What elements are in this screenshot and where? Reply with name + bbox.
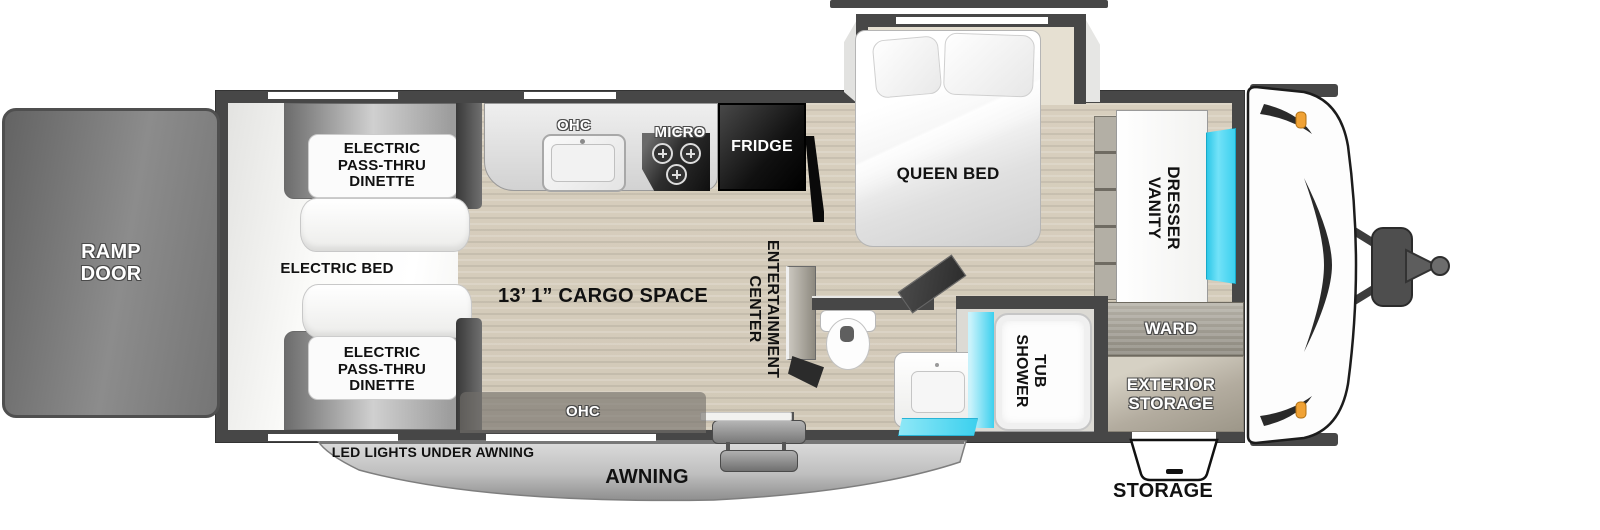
exterior-storage: EXTERIOR STORAGE <box>1098 356 1244 432</box>
burner-icon-2 <box>680 143 701 164</box>
entertainment-center-cabinet <box>786 266 816 360</box>
wardrobe: WARD <box>1098 302 1244 356</box>
entry-step-2 <box>720 450 798 472</box>
ramp-door: RAMP DOOR <box>2 108 220 418</box>
ohc-kitchen-label: OHC <box>534 117 614 135</box>
vanity-mirror <box>1206 128 1236 284</box>
led-lights-label: LED LIGHTS UNDER AWNING <box>330 445 536 461</box>
bath-faucet-icon <box>935 363 939 367</box>
window-bottom-1 <box>268 434 398 441</box>
electric-bed-label: ELECTRIC BED <box>262 260 412 278</box>
ohc-door-side-label: OHC <box>566 404 600 421</box>
pillow-right <box>943 32 1035 97</box>
bench-cushion-2 <box>302 284 472 338</box>
ohc-door-side: OHC <box>460 392 706 433</box>
tub-wall-top <box>956 296 1096 309</box>
faucet-icon <box>580 139 585 144</box>
window-bottom-2 <box>486 434 656 441</box>
slideout-window <box>896 17 1048 24</box>
queen-bed-label: QUEEN BED <box>868 164 1028 184</box>
rv-floorplan: RAMP DOOR QUEEN BED ELECTRIC PASS-THRU D… <box>0 0 1600 530</box>
dinette-front-label: ELECTRIC PASS-THRU DINETTE <box>294 130 470 202</box>
pillow-left <box>872 35 943 99</box>
exterior-storage-label: EXTERIOR STORAGE <box>1127 375 1216 413</box>
ramp-door-label: RAMP DOOR <box>81 241 142 286</box>
burner-icon-1 <box>652 143 673 164</box>
front-cap-and-hitch <box>1246 82 1458 450</box>
toilet <box>820 310 874 370</box>
ward-label: WARD <box>1145 319 1198 338</box>
entry-landing <box>700 412 792 421</box>
marker-light-bottom-icon <box>1296 402 1306 418</box>
awning-label: AWNING <box>587 466 707 488</box>
front-cap <box>1248 87 1356 443</box>
dresser-vanity-label: DRESSER VANITY <box>1142 156 1186 260</box>
slideout-flare-right <box>1086 20 1100 102</box>
slideout-exterior-bar <box>830 0 1108 8</box>
dresser-drawers <box>1094 116 1118 300</box>
fridge-label: FRIDGE <box>731 138 793 156</box>
bath-sink-counter <box>898 418 978 436</box>
cargo-space-label: 13’ 1” CARGO SPACE <box>493 285 713 307</box>
storage-door-handle <box>1166 469 1183 474</box>
burner-icon-3 <box>666 164 687 185</box>
entry-step-1 <box>712 420 806 444</box>
window-top-1 <box>268 92 398 99</box>
bath-sink-basin <box>911 371 965 413</box>
window-top-2 <box>524 92 616 99</box>
sink-basin <box>551 144 615 182</box>
entertainment-center-label: ENTERTAINMENT CENTER <box>743 229 783 389</box>
tub-shower-label: TUB SHOWER <box>1014 323 1046 419</box>
marker-light-top-icon <box>1296 112 1306 128</box>
hitch <box>1346 226 1449 306</box>
storage-label: STORAGE <box>1103 479 1223 503</box>
toilet-seat-mark <box>840 326 854 342</box>
storage-door <box>1126 438 1222 484</box>
tub-cyan-edge <box>968 312 994 428</box>
bath-wall-right <box>1094 296 1108 432</box>
bench-cushion-1 <box>300 198 470 252</box>
dinette-rear-label: ELECTRIC PASS-THRU DINETTE <box>294 334 470 406</box>
fridge: FRIDGE <box>718 103 806 191</box>
micro-label: MICRO <box>640 125 720 142</box>
kitchen-sink <box>542 134 626 192</box>
hitch-ball-icon <box>1431 257 1449 275</box>
